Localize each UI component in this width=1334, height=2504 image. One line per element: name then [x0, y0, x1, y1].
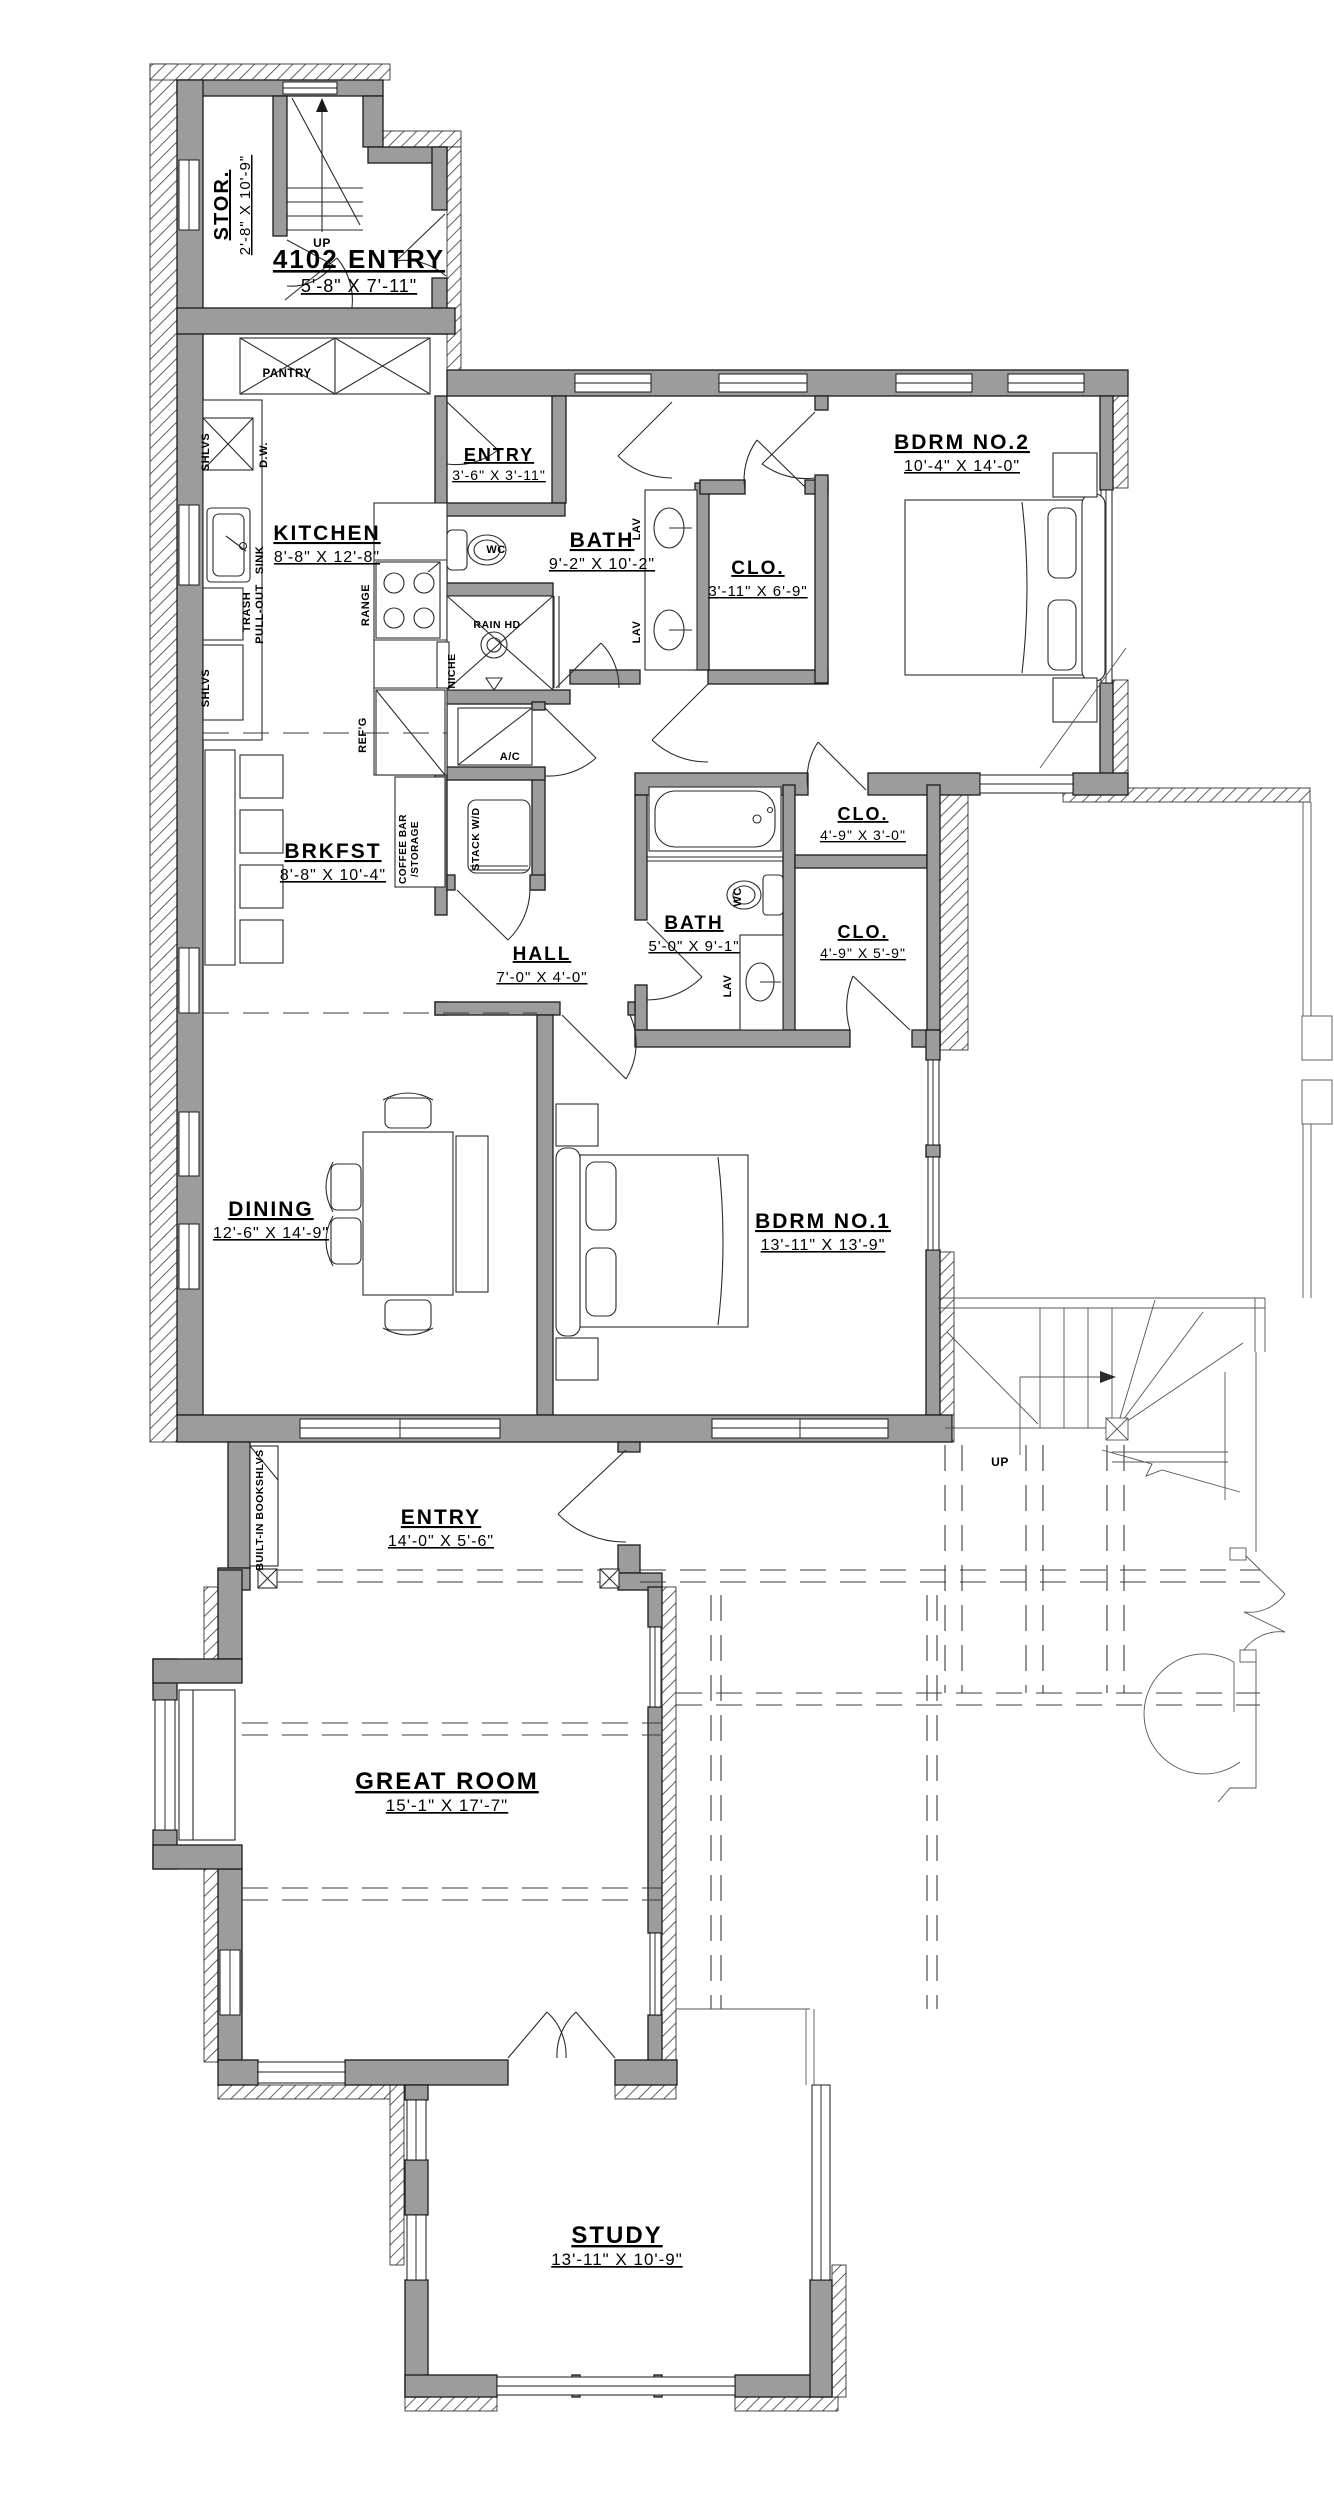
headboard — [1082, 494, 1105, 681]
chair — [240, 755, 283, 798]
label-up-stair-right: UP — [991, 1455, 1009, 1469]
kitchen-fixtures — [203, 338, 447, 887]
chair — [240, 865, 283, 908]
room-label-kitchen: KITCHEN — [273, 522, 380, 545]
headboard — [556, 1148, 580, 1336]
nightstand — [1053, 453, 1097, 497]
wc-tank — [763, 875, 783, 915]
room-dim-dining: 12'-6" X 14'-9" — [213, 1225, 329, 1242]
room-label-entry-main: ENTRY — [401, 1506, 481, 1529]
room-dim-kitchen: 8'-8" X 12'-8" — [274, 549, 380, 566]
nightstand — [556, 1104, 598, 1146]
label-pullout: PULL-OUT — [254, 584, 266, 644]
label-coffee-bar: COFFEE BAR — [398, 814, 409, 884]
chair — [240, 920, 283, 963]
room-label-bath1: BATH — [570, 529, 635, 552]
chair — [331, 1218, 361, 1264]
room-label-bdrm1: BDRM NO.1 — [755, 1210, 891, 1233]
label-lav2: LAV — [631, 620, 643, 643]
column-markers — [258, 1569, 619, 1588]
room-dim-bath-entry: 3'-6" X 3'-11" — [452, 467, 546, 483]
label-niche: NICHE — [446, 653, 458, 688]
label-lav3: LAV — [722, 974, 734, 997]
room-label-study: STUDY — [571, 2222, 662, 2249]
fixture-labels: UPPANTRYSHLVSD.W.SINKTRASHPULL-OUTSHLVSR… — [200, 236, 1009, 1571]
chair — [331, 1164, 361, 1210]
room-dim-clo-upper: 4'-9" X 3'-0" — [820, 827, 906, 843]
label-refg: REF'G — [357, 717, 369, 753]
label-storage: /STORAGE — [410, 821, 421, 877]
label-pantry: PANTRY — [263, 368, 312, 380]
label-wc-bath1: WC — [486, 544, 505, 556]
room-label-dining: DINING — [228, 1198, 314, 1221]
sideboard — [456, 1136, 488, 1292]
label-ac: A/C — [500, 751, 520, 763]
room-dim-bdrm1: 13'-11" X 13'-9" — [761, 1237, 886, 1254]
chair — [385, 1300, 431, 1330]
stair-top-left — [287, 98, 363, 232]
chair — [385, 1098, 431, 1128]
label-dishwasher: D.W. — [258, 442, 270, 468]
pillow — [1048, 508, 1076, 578]
room-label-clo-bath1: CLO. — [731, 558, 784, 579]
label-range: RANGE — [360, 584, 372, 626]
nightstand — [556, 1338, 598, 1380]
chair — [240, 810, 283, 853]
bath2-fixtures — [647, 787, 783, 1030]
brkfst-table — [205, 750, 235, 965]
room-dim-clo-lower: 4'-9" X 5'-9" — [820, 945, 906, 961]
furniture — [179, 453, 1105, 1840]
label-wc-bath2: WC — [732, 887, 744, 906]
label-lav1: LAV — [631, 517, 643, 540]
room-label-stor: STOR. — [211, 170, 233, 241]
stair-arrow-icon — [316, 98, 328, 112]
room-label-clo-lower: CLO. — [838, 922, 889, 942]
pillow — [586, 1248, 616, 1316]
label-shlvs-lower: SHLVS — [200, 669, 212, 707]
label-bookshlvs: BUILT-IN BOOKSHLVS — [254, 1449, 266, 1570]
label-rain-hd: RAIN HD — [473, 619, 520, 631]
stair-direction-arrow-icon — [1100, 1371, 1116, 1383]
label-stack-wd: STACK W/D — [470, 807, 482, 870]
floor-plan-drawing: STOR.2'-8" X 10'-9"4102 ENTRY5'-8" X 7'-… — [0, 0, 1334, 2504]
pillow — [1048, 600, 1076, 670]
floor-plan-sheet: STOR.2'-8" X 10'-9"4102 ENTRY5'-8" X 7'-… — [0, 0, 1334, 2504]
break-line — [1102, 1450, 1240, 1492]
room-dim-entry-4102: 5'-8" X 7'-11" — [301, 276, 417, 296]
label-trash: TRASH — [241, 592, 253, 632]
room-dim-bath2: 5'-0" X 9'-1" — [648, 938, 739, 955]
room-dim-study: 13'-11" X 10'-9" — [551, 2250, 683, 2269]
room-dim-entry-main: 14'-0" X 5'-6" — [388, 1533, 494, 1550]
room-label-hall: HALL — [513, 944, 572, 965]
range — [376, 562, 440, 638]
room-label-bdrm2: BDRM NO.2 — [894, 431, 1030, 454]
nightstand — [1053, 678, 1097, 722]
room-label-bath-entry: ENTRY — [464, 445, 534, 465]
room-dim-hall: 7'-0" X 4'-0" — [496, 969, 587, 986]
label-shlvs-upper: SHLVS — [200, 433, 212, 471]
room-label-clo-upper: CLO. — [838, 804, 889, 824]
ceiling-dashed-lines — [203, 733, 1260, 2009]
room-label-great-room: GREAT ROOM — [355, 1768, 539, 1795]
room-dim-great-room: 15'-1" X 17'-7" — [386, 1796, 508, 1815]
room-dim-stor: 2'-8" X 10'-9" — [237, 155, 254, 255]
room-dim-bath1: 9'-2" X 10'-2" — [549, 556, 655, 573]
room-dim-clo-bath1: 3'-11" X 6'-9" — [708, 583, 807, 600]
room-dim-brkfst: 8'-8" X 10'-4" — [280, 867, 386, 884]
dining-table — [363, 1132, 453, 1295]
neighbor-stair-and-porch — [676, 648, 1332, 2085]
room-label-entry-4102: 4102 ENTRY — [273, 244, 445, 274]
window-seat — [179, 1690, 235, 1840]
label-up-stair-top: UP — [313, 236, 331, 250]
pillow — [586, 1162, 616, 1230]
room-label-bath2: BATH — [664, 913, 723, 934]
wc-tank — [447, 530, 467, 570]
room-dim-bdrm2: 10'-4" X 14'-0" — [904, 458, 1020, 475]
room-label-brkfst: BRKFST — [284, 840, 381, 863]
label-sink: SINK — [254, 546, 266, 574]
